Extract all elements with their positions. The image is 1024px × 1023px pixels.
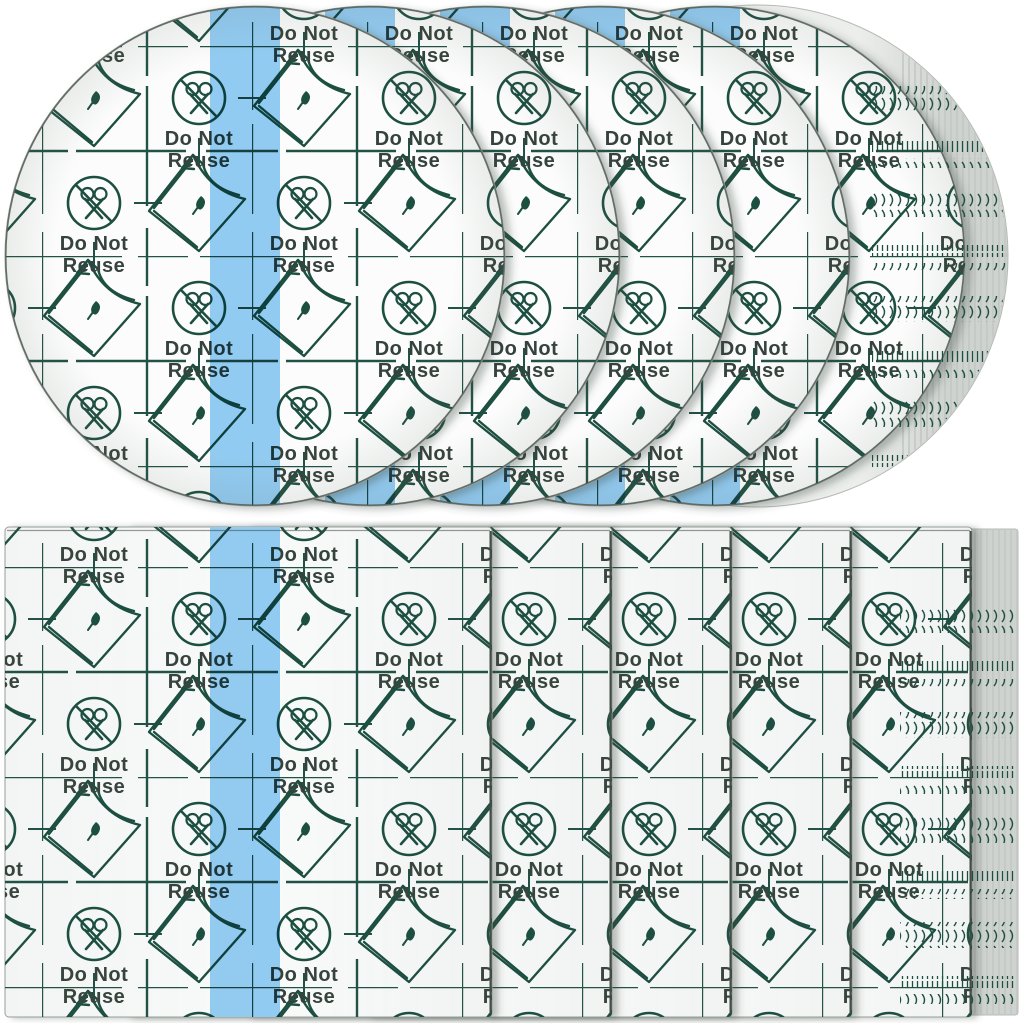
rect-film-1 [5, 527, 492, 1017]
product-image: Do NotReuse [0, 0, 1024, 1023]
round-film-1 [5, 6, 505, 506]
product-photo-stage: Do NotReuse [0, 0, 1024, 1023]
